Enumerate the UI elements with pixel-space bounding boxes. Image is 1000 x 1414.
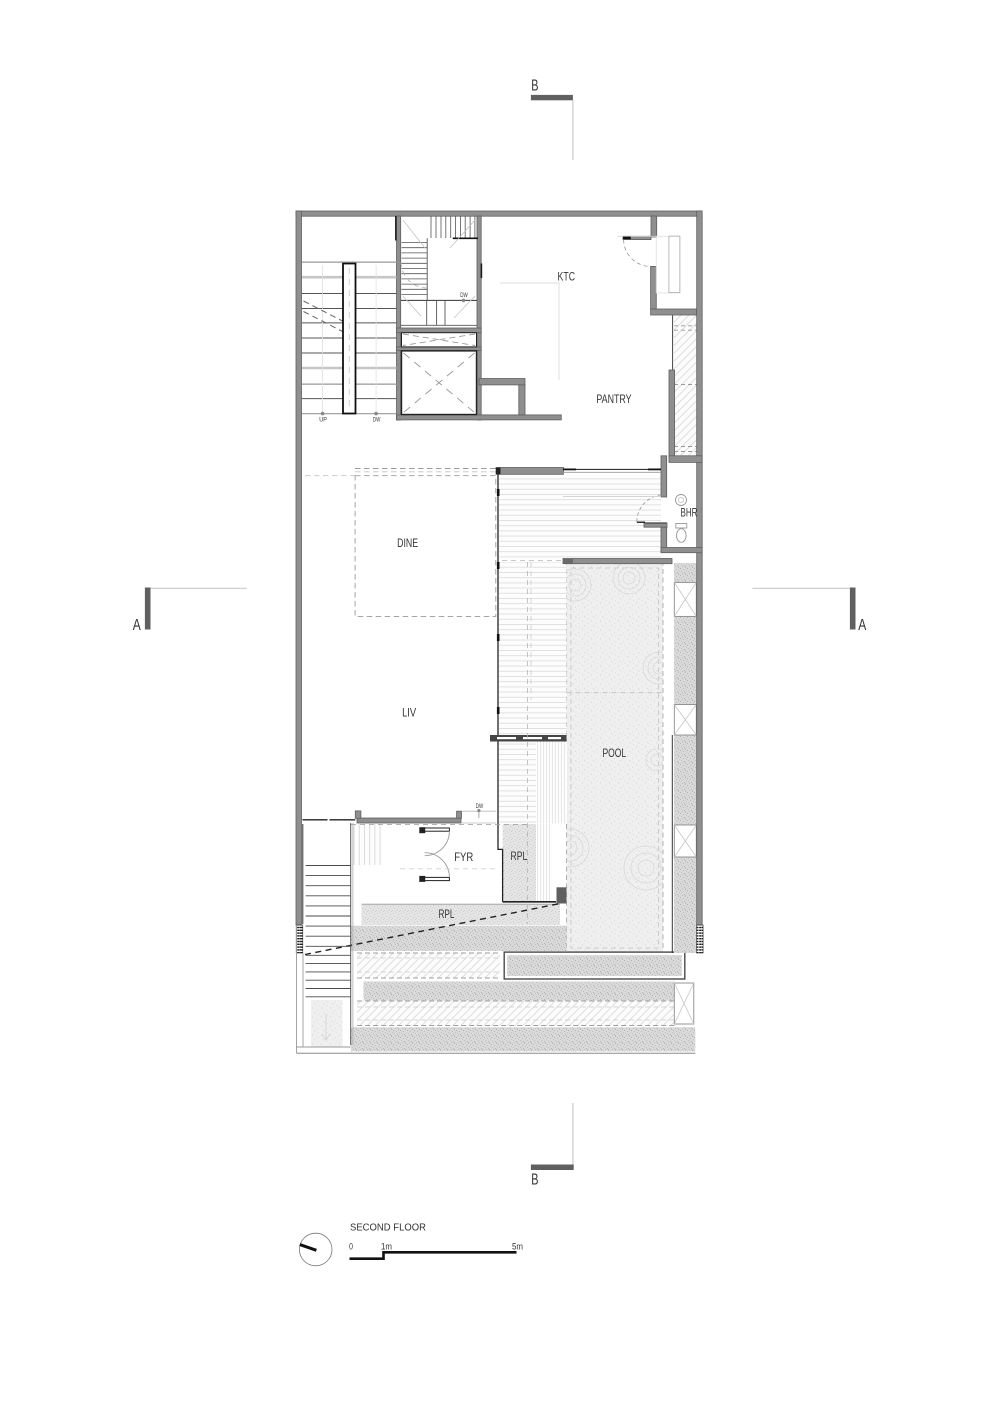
svg-text:POOL: POOL xyxy=(602,747,626,760)
svg-text:A: A xyxy=(858,617,867,634)
svg-text:PANTRY: PANTRY xyxy=(596,393,631,406)
svg-text:FYR: FYR xyxy=(454,851,473,864)
svg-text:B: B xyxy=(531,1171,538,1188)
svg-text:LIV: LIV xyxy=(402,706,416,719)
svg-text:0: 0 xyxy=(349,1241,353,1252)
svg-text:RPL: RPL xyxy=(511,850,528,863)
svg-text:1m: 1m xyxy=(381,1241,392,1252)
svg-text:B: B xyxy=(531,77,538,94)
svg-text:KTC: KTC xyxy=(558,271,576,284)
svg-text:UP: UP xyxy=(319,417,327,424)
svg-text:RPL: RPL xyxy=(439,908,455,921)
svg-text:A: A xyxy=(133,617,142,634)
svg-text:BHR: BHR xyxy=(681,506,698,519)
svg-text:DW: DW xyxy=(476,803,484,810)
svg-text:DW: DW xyxy=(460,292,468,299)
svg-text:SECOND FLOOR: SECOND FLOOR xyxy=(350,1222,426,1234)
svg-text:DINE: DINE xyxy=(397,537,418,550)
svg-text:5m: 5m xyxy=(512,1241,523,1252)
svg-text:DW: DW xyxy=(373,417,381,424)
